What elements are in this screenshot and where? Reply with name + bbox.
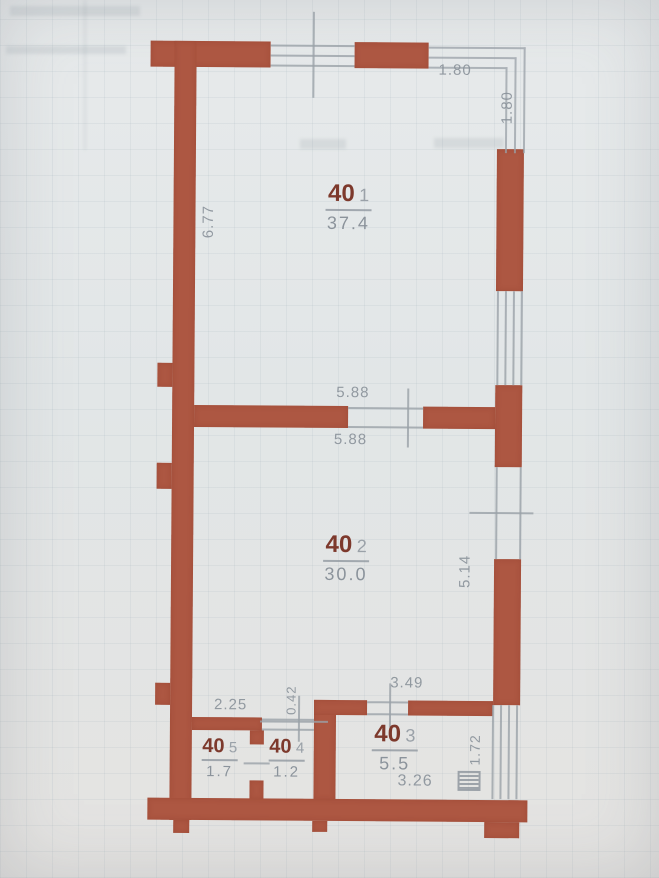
hall-top-wall <box>192 717 262 730</box>
right-wall-lower <box>493 559 521 705</box>
right-window-line <box>504 291 507 385</box>
dim-balcony-width: 1.80 <box>438 62 471 79</box>
divider-opening-line <box>348 426 423 429</box>
dim-loggia-window: 1.72 <box>467 723 483 777</box>
right-wall-upper <box>496 149 524 291</box>
floor-plan: 40 1 37.4 40 2 30.0 40 3 5.5 40 4 1.2 40… <box>0 0 659 878</box>
dim-balcony-depth: 1.80 <box>499 80 516 136</box>
left-wall <box>169 41 196 820</box>
room-area: 5.5 <box>364 753 426 774</box>
bottom-wall-stub-right <box>484 822 519 838</box>
vent-shaft-icon <box>457 771 480 791</box>
room-number: 40 2 <box>313 533 379 557</box>
floor-plan-page: 40 1 37.4 40 2 30.0 40 3 5.5 40 4 1.2 40… <box>0 0 659 878</box>
fraction-bar <box>269 760 305 762</box>
top-wall-right <box>355 42 429 69</box>
dim-room1-height: 6.77 <box>200 192 217 252</box>
room-label-40-2: 40 2 30.0 <box>313 533 379 585</box>
divider-opening-line <box>348 407 423 410</box>
fraction-bar <box>326 209 372 211</box>
bottom-wall <box>147 798 527 823</box>
room-area: 1.2 <box>264 763 310 780</box>
room-label-40-4: 40 4 1.2 <box>264 736 310 780</box>
right-opening-dim-tick <box>469 512 533 514</box>
divider-opening-dim-tick <box>407 388 409 447</box>
fraction-bar <box>323 560 369 562</box>
room-number: 40 4 <box>264 736 310 756</box>
loggia-window-line <box>507 705 510 799</box>
left-wall-stub-mid <box>157 463 172 489</box>
room-number: 40 3 <box>364 722 426 746</box>
right-window-line <box>512 291 515 385</box>
dim-room3-opening: 3.49 <box>390 674 423 691</box>
loggia-window-line <box>491 705 494 799</box>
dim-opening-bottom: 5.88 <box>334 431 367 448</box>
top-wall-left <box>151 41 271 68</box>
dim-opening-top: 5.88 <box>336 384 369 401</box>
balcony-outline-inner <box>428 67 508 154</box>
room-number: 40 1 <box>316 182 382 206</box>
room-label-40-5: 40 5 1.7 <box>196 736 244 780</box>
dim-room2-height: 5.14 <box>456 541 473 601</box>
top-window-dim-tick <box>312 12 315 98</box>
partition-45-44-lower <box>249 780 263 799</box>
dim-door-width: 0.42 <box>283 676 298 724</box>
left-wall-stub-lower <box>155 683 170 705</box>
fraction-bar <box>372 749 418 751</box>
fraction-bar <box>202 759 238 761</box>
left-wall-stub-upper <box>157 363 172 387</box>
hall-opening-line <box>262 728 314 730</box>
room-area: 30.0 <box>313 564 379 585</box>
room-area: 37.4 <box>315 213 381 234</box>
loggia-window-line <box>499 705 502 799</box>
room-label-40-3: 40 3 5.5 <box>364 722 426 774</box>
right-window-line <box>520 291 523 385</box>
partition-45-44-upper <box>250 730 264 744</box>
room-label-40-1: 40 1 37.4 <box>315 182 381 234</box>
divider-wall-right <box>423 407 495 430</box>
dim-hall-width: 2.25 <box>214 696 247 713</box>
room3-top-wall-right <box>408 700 493 716</box>
room3-top-wall-left <box>314 700 367 715</box>
dim-room3-width: 3.26 <box>397 772 432 790</box>
room3-opening-line <box>367 713 408 715</box>
bottom-wall-stub-mid <box>312 821 327 832</box>
divider-wall-left <box>194 405 348 428</box>
room3-opening-line <box>367 701 408 703</box>
room-area: 1.7 <box>196 763 244 780</box>
loggia-window-line <box>515 705 518 799</box>
right-window-line <box>496 291 499 385</box>
right-wall-mid <box>495 385 523 467</box>
bottom-wall-stub-left <box>173 820 189 833</box>
room-number: 40 5 <box>196 736 244 756</box>
